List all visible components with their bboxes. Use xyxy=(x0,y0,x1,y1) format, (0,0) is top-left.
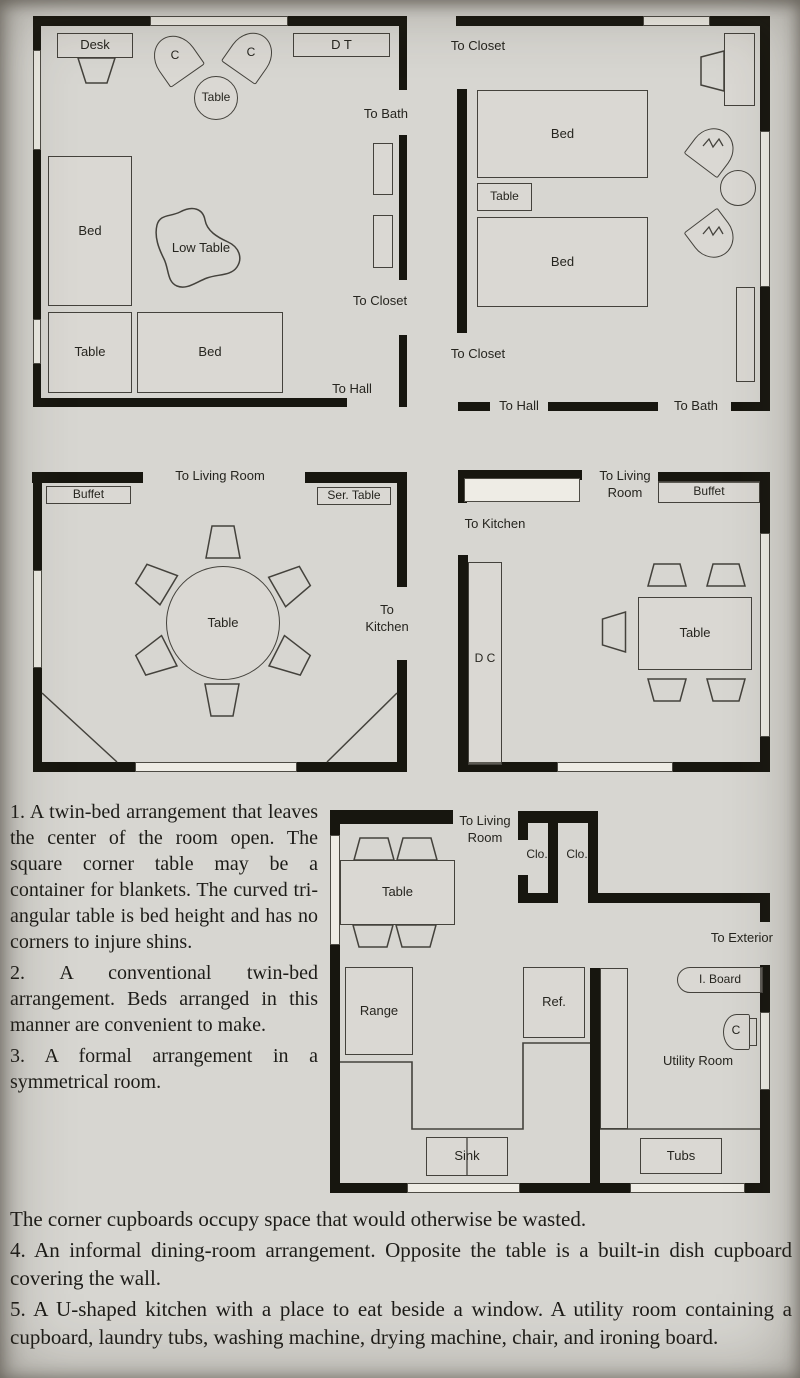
dresser xyxy=(724,33,755,106)
window xyxy=(330,835,340,945)
closet-wall xyxy=(518,811,598,823)
book-page: Desk D T C C Table Bed Table Bed Low Tab… xyxy=(0,0,800,1378)
door-label-to-kitchen: To Kitchen xyxy=(460,516,530,533)
door-label-to-bath: To Bath xyxy=(662,398,730,415)
wall xyxy=(760,16,770,131)
dish-cupboard-label: D C xyxy=(468,651,502,666)
door-label-to-living-room: To Living Room xyxy=(590,468,660,501)
caption-bottom: The corner cupboards occupy space that w… xyxy=(10,1205,792,1354)
closet-wall xyxy=(518,811,528,840)
caption-column: 1. A twin-bed arrange­ment that leaves t… xyxy=(10,799,318,1100)
utility-cupboard xyxy=(600,968,628,1129)
door-label-to-hall: To Hall xyxy=(490,398,548,415)
armchair xyxy=(684,208,743,267)
floorplan-5-kitchen: Table Range Ref. Sink Tubs I. Board C To… xyxy=(328,805,776,1197)
dining-table: Table xyxy=(638,597,752,670)
wall xyxy=(458,555,468,772)
caption-2: 2. A conventional twin-bed arrangement. … xyxy=(10,960,318,1038)
desk: Desk xyxy=(57,33,133,58)
range: Range xyxy=(345,967,413,1055)
chest xyxy=(373,143,393,195)
wall xyxy=(456,16,770,26)
window xyxy=(407,1183,520,1193)
refrigerator: Ref. xyxy=(523,967,585,1038)
buffet: Buffet xyxy=(46,486,131,504)
window xyxy=(135,762,297,772)
corner-table: Table xyxy=(48,312,132,393)
caption-1: 1. A twin-bed arrange­ment that leaves t… xyxy=(10,799,318,955)
window xyxy=(760,1012,770,1090)
window xyxy=(33,50,41,150)
low-table-label: Low Table xyxy=(168,240,234,257)
window xyxy=(760,131,770,287)
table: Table xyxy=(477,183,532,211)
wall xyxy=(399,335,407,407)
wall xyxy=(598,893,770,903)
dresser-chair xyxy=(701,51,724,91)
wall xyxy=(397,483,407,587)
window xyxy=(33,570,42,668)
wall xyxy=(305,472,407,483)
serving-table: Ser. Table xyxy=(317,487,391,505)
wall xyxy=(731,402,770,411)
buffet: Buffet xyxy=(658,481,760,503)
floorplan-2-bedroom: Bed Table Bed To Closet To Closet To Hal… xyxy=(440,14,775,414)
wall xyxy=(33,668,42,772)
wall xyxy=(548,402,658,411)
window xyxy=(760,533,770,737)
caption-3-end: The corner cupboards occupy space that w… xyxy=(10,1205,792,1233)
closet-wall xyxy=(518,893,550,903)
window xyxy=(33,319,41,364)
desk-chair xyxy=(78,58,115,83)
window xyxy=(643,16,710,26)
door-label-to-closet: To Closet xyxy=(448,346,508,363)
bed: Bed xyxy=(477,217,648,307)
door-label-to-closet: To Closet xyxy=(448,38,508,55)
bed: Bed xyxy=(48,156,132,306)
caption-4: 4. An informal dining-room arrangement. … xyxy=(10,1236,792,1292)
wall xyxy=(33,398,347,407)
utility-room-label: Utility Room xyxy=(658,1053,738,1070)
wall xyxy=(32,472,143,483)
door-label-to-living-room: To Living Room xyxy=(155,468,285,485)
kitchen-counter xyxy=(340,1043,590,1129)
wall xyxy=(760,893,770,922)
wall xyxy=(458,402,490,411)
door-label-to-bath: To Bath xyxy=(330,106,408,123)
caption-3-start: 3. A formal arrangement in a symmetrical… xyxy=(10,1043,318,1095)
closet-label: Clo. xyxy=(556,847,598,862)
sideboard xyxy=(464,478,580,502)
floorplan-4-dining: Buffet D C Table To Living Room To Kitch… xyxy=(440,468,775,776)
door-label-to-exterior: To Exterior xyxy=(695,930,773,947)
wall xyxy=(590,968,600,1193)
door-label-to-kitchen: To Kitchen xyxy=(358,602,416,635)
kitchen-table: Table xyxy=(340,860,455,925)
chest xyxy=(736,287,755,382)
chair-back xyxy=(749,1018,757,1046)
laundry-tubs: Tubs xyxy=(640,1138,722,1174)
wall xyxy=(399,135,407,280)
door-opening xyxy=(150,16,288,26)
corner-cupboard xyxy=(42,693,117,762)
corner-cupboard xyxy=(327,693,397,762)
sink: Sink xyxy=(426,1137,508,1176)
round-table: Table xyxy=(194,76,238,120)
round-dining-table: Table xyxy=(166,566,280,680)
floorplan-1-bedroom: Desk D T C C Table Bed Table Bed Low Tab… xyxy=(30,14,410,410)
caption-5: 5. A U-shaped kitchen with a place to ea… xyxy=(10,1295,792,1351)
chair-label: C xyxy=(726,1023,746,1038)
wall xyxy=(399,16,407,90)
wall xyxy=(33,472,42,570)
wall xyxy=(457,89,467,333)
wall xyxy=(397,660,407,772)
bed: Bed xyxy=(477,90,648,178)
round-table xyxy=(720,170,756,206)
floorplan-3-dining: Buffet Ser. Table Table To Living Room T… xyxy=(30,468,410,776)
dressing-table: D T xyxy=(293,33,390,57)
ironing-board: I. Board xyxy=(677,967,763,993)
chest xyxy=(373,215,393,268)
door-label-to-hall: To Hall xyxy=(329,381,375,398)
wall xyxy=(760,472,770,533)
chair-label: C xyxy=(163,48,187,63)
door-label-to-living-room: To Living Room xyxy=(456,813,514,846)
window xyxy=(630,1183,745,1193)
closet-label: Clo. xyxy=(516,847,558,862)
door-label-to-closet: To Closet xyxy=(352,293,408,310)
wall xyxy=(760,287,770,411)
bed: Bed xyxy=(137,312,283,393)
chair-label: C xyxy=(239,45,263,60)
wall xyxy=(330,810,453,824)
wall xyxy=(760,1090,770,1193)
window xyxy=(557,762,673,772)
